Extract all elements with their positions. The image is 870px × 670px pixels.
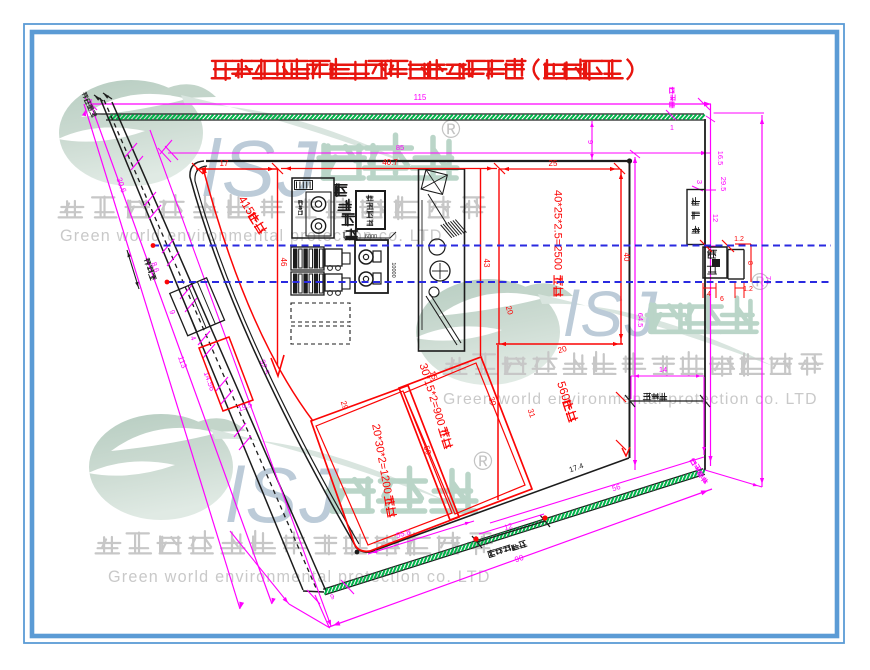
svg-text:10000: 10000 bbox=[390, 262, 396, 277]
svg-text:1: 1 bbox=[670, 125, 674, 132]
svg-text:9: 9 bbox=[586, 140, 595, 144]
svg-text:113: 113 bbox=[176, 355, 189, 371]
svg-text:9: 9 bbox=[167, 309, 177, 316]
svg-text:40.7: 40.7 bbox=[382, 158, 398, 167]
svg-text:40: 40 bbox=[622, 253, 631, 262]
svg-text:12: 12 bbox=[711, 214, 720, 222]
svg-text:1.2: 1.2 bbox=[743, 286, 753, 293]
svg-text:50: 50 bbox=[422, 445, 433, 457]
svg-text:43: 43 bbox=[482, 259, 491, 268]
svg-text:3: 3 bbox=[695, 180, 704, 184]
svg-text:16.5: 16.5 bbox=[716, 151, 725, 166]
svg-text:8: 8 bbox=[746, 261, 753, 265]
svg-text:19.5: 19.5 bbox=[237, 400, 254, 413]
svg-text:4: 4 bbox=[707, 291, 711, 298]
svg-text:®: ® bbox=[473, 446, 492, 476]
svg-text:40*25*2.5=2500: 40*25*2.5=2500 bbox=[552, 190, 564, 270]
svg-text:25: 25 bbox=[549, 159, 558, 168]
svg-text:6: 6 bbox=[720, 296, 724, 303]
svg-text:85: 85 bbox=[396, 143, 404, 152]
svg-text:115: 115 bbox=[414, 93, 427, 102]
svg-text:4: 4 bbox=[188, 335, 198, 342]
svg-text:56: 56 bbox=[611, 482, 622, 493]
svg-text:17: 17 bbox=[220, 159, 229, 168]
svg-text:Green world environmental prot: Green world environmental protection co.… bbox=[108, 568, 491, 586]
svg-text:64.5: 64.5 bbox=[636, 313, 645, 328]
svg-text:90: 90 bbox=[514, 553, 526, 565]
svg-text:20*30*2=1200: 20*30*2=1200 bbox=[369, 423, 393, 495]
svg-text:6000: 6000 bbox=[365, 234, 377, 240]
svg-text:14: 14 bbox=[659, 365, 667, 374]
svg-text:46: 46 bbox=[279, 258, 288, 267]
svg-text:31: 31 bbox=[526, 408, 537, 420]
svg-text:1.2: 1.2 bbox=[734, 236, 744, 243]
svg-text:17.4: 17.4 bbox=[568, 461, 585, 474]
svg-text:12: 12 bbox=[503, 521, 514, 532]
svg-text:9: 9 bbox=[330, 594, 336, 602]
svg-text:29.5: 29.5 bbox=[719, 177, 728, 192]
